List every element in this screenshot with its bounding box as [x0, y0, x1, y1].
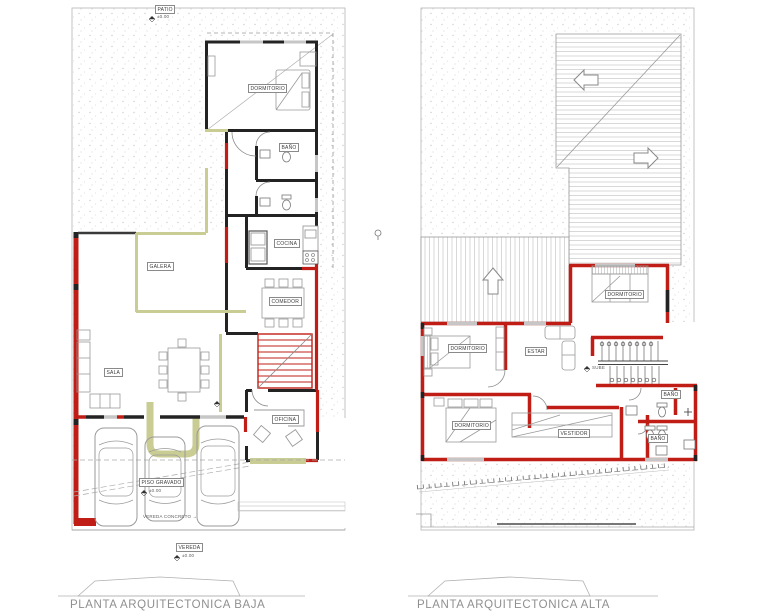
room-label-bano-2: BAÑO — [648, 434, 668, 443]
room-label-bano-baja: BAÑO — [279, 143, 299, 152]
caption-planta-baja: PLANTA ARQUITECTONICA BAJA — [70, 599, 265, 613]
stairs-sube-text: SUBE — [592, 366, 605, 371]
room-label-bano-1: BAÑO — [661, 390, 681, 399]
piso-level-text: ±0.00 — [149, 489, 161, 494]
level-marker-icon — [174, 555, 180, 561]
room-label-comedor: COMEDOR — [269, 297, 302, 306]
room-label-dormitorio-2: DORMITORIO — [452, 421, 491, 430]
architectural-sheet: PATIO ±0.00 DORMITORIO BAÑO COCINA COMED… — [0, 0, 768, 614]
room-label-dormitorio-3: DORMITORIO — [605, 290, 644, 299]
vereda-level-text: ±0.00 — [182, 554, 194, 559]
site-marker-icon — [375, 230, 381, 240]
caption-planta-alta: PLANTA ARQUITECTONICA ALTA — [417, 599, 610, 613]
ground-floor-plan — [72, 8, 346, 561]
patio-level-text: ±0.00 — [157, 15, 169, 20]
room-label-oficina: OFICINA — [272, 415, 299, 424]
site-label-piso-gravado: PISO GRAVADO — [139, 478, 184, 487]
room-label-dormitorio-1: DORMITORIO — [448, 344, 487, 353]
room-label-vestidor: VESTIDOR — [558, 429, 590, 438]
room-label-galera: GALERA — [147, 262, 174, 271]
caption-underline-graphics — [58, 577, 658, 596]
site-text-vereda-concreto: VEREDA CONCRETO → — [143, 515, 197, 520]
floorplan-drawing — [0, 0, 768, 614]
room-label-cocina: COCINA — [274, 239, 300, 248]
room-label-sala: SALA — [104, 368, 123, 377]
room-label-estar: ESTAR — [525, 347, 547, 356]
site-label-patio: PATIO — [155, 5, 175, 14]
sidewalk-hatch — [238, 502, 345, 511]
site-label-vereda: VEREDA — [176, 543, 203, 552]
room-label-dormitorio-baja: DORMITORIO — [248, 84, 287, 93]
upper-floor-plan — [416, 8, 697, 530]
stairs-baja — [258, 334, 312, 388]
roof-hatched — [556, 34, 681, 265]
